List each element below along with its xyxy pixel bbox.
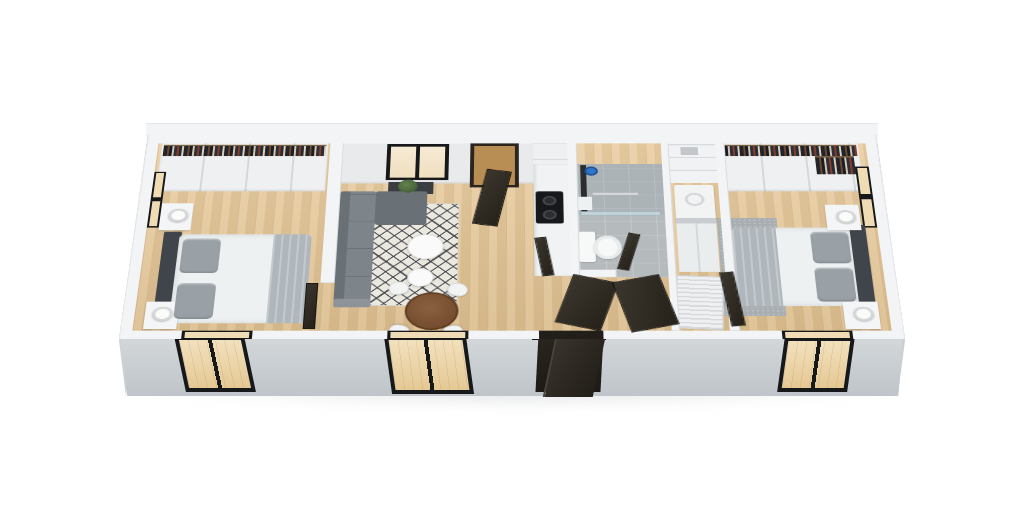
- front-window-head-right: [782, 331, 854, 340]
- front-window-head-left: [181, 331, 253, 340]
- hanging-clothes-right: [719, 145, 858, 157]
- shower-glass-screen: [580, 211, 661, 215]
- floor-plan: [119, 135, 906, 340]
- bedroom-right-wardrobe: [717, 143, 865, 191]
- washer-panel: [676, 218, 716, 223]
- shower-head-blue: [584, 167, 598, 176]
- front-exterior-wall: [117, 334, 907, 398]
- glass: [785, 332, 850, 338]
- entry-opening: [539, 331, 604, 340]
- bedroom-left-front-window: [174, 336, 256, 392]
- storage-box: [680, 147, 698, 155]
- glass: [184, 332, 249, 338]
- front-window-head-living: [387, 331, 468, 340]
- shower-grab-bar: [593, 193, 638, 195]
- utility-shelves: [668, 143, 718, 182]
- sofa-corner-section: [374, 191, 427, 224]
- sofa-chaise: [333, 191, 376, 304]
- burner-2: [543, 210, 557, 219]
- wardrobe-open-section: [815, 156, 856, 174]
- bed-right-pillow-top: [810, 232, 852, 264]
- utility-cabinet: [676, 223, 720, 271]
- glass: [390, 332, 465, 338]
- floorplan-render: [0, 0, 1024, 528]
- burner-1: [543, 196, 557, 205]
- sofa-armrest: [333, 299, 370, 308]
- bed-left-pillow-bottom: [173, 283, 216, 319]
- louvered-closet-doors: [676, 275, 724, 330]
- bedroom-right-front-window: [777, 337, 855, 392]
- bedroom-left-wardrobe: [156, 143, 329, 191]
- shower-shelf: [578, 197, 592, 210]
- living-back-window: [386, 144, 450, 180]
- bed-right-pillow-bottom: [814, 268, 857, 302]
- living-front-glass-door: [384, 336, 474, 394]
- bed-left-pillow-top: [179, 238, 221, 273]
- hanging-clothes-left: [163, 145, 327, 157]
- bed-right-blanket: [732, 228, 784, 306]
- toilet-bowl: [593, 236, 622, 259]
- washer-door-ring: [684, 193, 705, 206]
